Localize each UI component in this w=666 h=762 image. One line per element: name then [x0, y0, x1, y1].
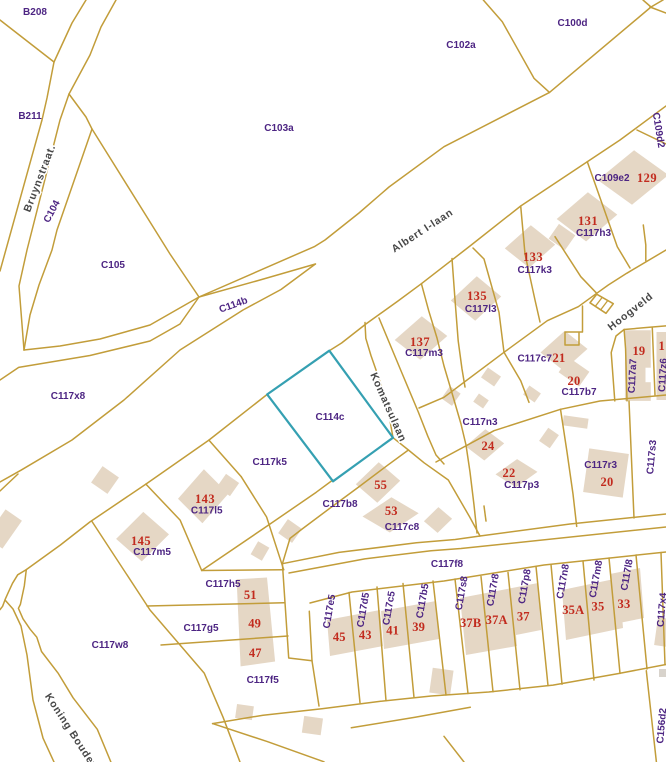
svg-text:39: 39 — [412, 620, 425, 634]
svg-text:37: 37 — [517, 610, 530, 624]
svg-text:C100d: C100d — [557, 18, 587, 29]
svg-text:C117w8: C117w8 — [92, 640, 129, 651]
svg-text:C117r3: C117r3 — [584, 460, 617, 471]
svg-text:133: 133 — [523, 250, 543, 264]
svg-text:51: 51 — [244, 588, 257, 602]
svg-text:35A: 35A — [562, 603, 584, 617]
svg-text:C117c8: C117c8 — [385, 522, 420, 533]
svg-text:C117c7: C117c7 — [517, 353, 552, 364]
svg-text:135: 135 — [467, 289, 487, 303]
svg-text:45: 45 — [333, 630, 346, 644]
svg-text:55: 55 — [374, 478, 387, 492]
svg-text:C117b8: C117b8 — [322, 499, 357, 510]
svg-text:C117f8: C117f8 — [431, 559, 464, 570]
svg-text:C102a: C102a — [446, 40, 476, 51]
svg-text:37A: 37A — [486, 613, 508, 627]
svg-text:35: 35 — [592, 600, 605, 614]
svg-text:49: 49 — [248, 617, 261, 631]
svg-text:19: 19 — [632, 344, 645, 358]
svg-text:24: 24 — [482, 439, 495, 453]
svg-text:53: 53 — [385, 504, 398, 518]
svg-text:C117z6: C117z6 — [657, 357, 666, 392]
svg-text:C117a7: C117a7 — [627, 358, 640, 393]
svg-text:1: 1 — [658, 339, 664, 353]
svg-text:C117m5: C117m5 — [133, 547, 171, 558]
svg-text:143: 143 — [195, 492, 215, 506]
svg-text:129: 129 — [637, 171, 657, 185]
svg-text:C117p3: C117p3 — [504, 480, 539, 491]
svg-text:145: 145 — [131, 534, 151, 548]
svg-text:22: 22 — [503, 466, 516, 480]
svg-text:B211: B211 — [18, 111, 42, 122]
svg-text:33: 33 — [618, 597, 631, 611]
svg-text:C103a: C103a — [264, 123, 294, 134]
svg-text:43: 43 — [359, 628, 372, 642]
svg-text:C117m3: C117m3 — [405, 348, 443, 359]
svg-text:C117k5: C117k5 — [252, 457, 287, 468]
svg-text:C117f5: C117f5 — [247, 675, 280, 686]
svg-text:C117x8: C117x8 — [51, 391, 86, 402]
svg-text:B208: B208 — [23, 7, 47, 18]
svg-text:131: 131 — [578, 214, 598, 228]
svg-text:C114c: C114c — [316, 412, 345, 423]
svg-text:C117h3: C117h3 — [576, 228, 611, 239]
svg-text:47: 47 — [249, 646, 262, 660]
svg-text:37B: 37B — [460, 616, 481, 630]
svg-text:C117l3: C117l3 — [465, 304, 497, 315]
svg-text:C117b7: C117b7 — [561, 387, 596, 398]
svg-text:C117h5: C117h5 — [205, 579, 240, 590]
svg-text:C105: C105 — [101, 260, 125, 271]
svg-text:41: 41 — [386, 624, 399, 638]
svg-text:C117g5: C117g5 — [183, 623, 218, 634]
svg-text:C109e2: C109e2 — [594, 173, 629, 184]
svg-text:20: 20 — [568, 374, 581, 388]
svg-text:21: 21 — [553, 351, 566, 365]
svg-text:C117n3: C117n3 — [462, 417, 497, 428]
svg-text:20: 20 — [601, 475, 614, 489]
svg-text:C117k3: C117k3 — [517, 265, 552, 276]
svg-text:C117l5: C117l5 — [191, 505, 223, 516]
svg-text:137: 137 — [410, 335, 430, 349]
